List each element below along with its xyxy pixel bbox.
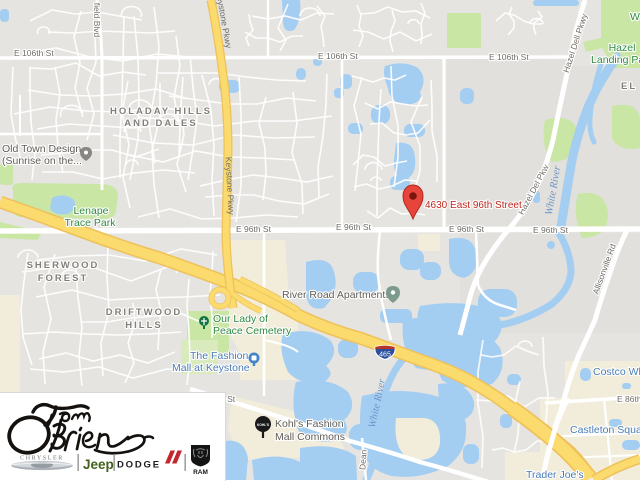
- svg-text:E 96th St: E 96th St: [533, 225, 569, 235]
- svg-text:River Road Apartments: River Road Apartments: [282, 289, 391, 301]
- svg-text:SHERWOOD: SHERWOOD: [27, 260, 100, 271]
- svg-text:Lenape: Lenape: [73, 205, 108, 217]
- svg-text:(Sunrise on the...: (Sunrise on the...: [2, 155, 82, 167]
- svg-text:HILLS: HILLS: [125, 320, 162, 331]
- svg-text:Trace Park: Trace Park: [65, 217, 117, 229]
- svg-text:EL: EL: [621, 81, 637, 92]
- svg-text:RAM: RAM: [193, 469, 208, 476]
- svg-text:FOREST: FOREST: [38, 273, 89, 284]
- svg-text:4630 East 96th Street: 4630 East 96th Street: [425, 200, 522, 211]
- svg-text:Dean: Dean: [357, 449, 368, 470]
- svg-text:E 96th St: E 96th St: [336, 222, 372, 232]
- svg-text:KOHL'S: KOHL'S: [257, 423, 269, 427]
- svg-text:E 96th St: E 96th St: [236, 224, 272, 234]
- svg-text:field Blvd: field Blvd: [92, 3, 102, 38]
- svg-text:E 106th St: E 106th St: [489, 52, 529, 62]
- svg-text:CHRYSLER: CHRYSLER: [20, 456, 64, 462]
- svg-text:E 106th St: E 106th St: [14, 48, 54, 58]
- svg-text:Peace Cemetery: Peace Cemetery: [213, 325, 292, 337]
- svg-text:Mall Commons: Mall Commons: [275, 431, 345, 443]
- svg-text:The Fashion: The Fashion: [190, 350, 249, 362]
- svg-text:DRIFTWOOD: DRIFTWOOD: [106, 307, 183, 318]
- svg-text:Jeep: Jeep: [83, 457, 114, 472]
- svg-text:Castleton Squa: Castleton Squa: [570, 424, 640, 436]
- svg-text:Kohl's Fashion: Kohl's Fashion: [275, 418, 344, 430]
- svg-text:Hazel: Hazel: [609, 42, 636, 54]
- svg-text:465: 465: [379, 352, 391, 359]
- svg-text:AND DALES: AND DALES: [124, 118, 197, 129]
- svg-text:W: W: [630, 11, 640, 23]
- svg-text:Costco Wh: Costco Wh: [593, 366, 640, 378]
- svg-text:DODGE: DODGE: [117, 460, 161, 471]
- svg-text:Old Town Design: Old Town Design: [2, 143, 81, 155]
- svg-text:Our Lady of: Our Lady of: [213, 313, 268, 325]
- svg-text:E 96th St: E 96th St: [449, 224, 485, 234]
- svg-text:Mall at Keystone: Mall at Keystone: [172, 362, 250, 374]
- svg-text:E 86th: E 86th: [617, 394, 640, 404]
- svg-text:HOLADAY HILLS: HOLADAY HILLS: [110, 106, 212, 117]
- svg-text:E 106th St: E 106th St: [318, 51, 358, 61]
- svg-text:Landing Park: Landing Park: [591, 54, 640, 66]
- svg-text:Trader Joe's: Trader Joe's: [526, 469, 584, 480]
